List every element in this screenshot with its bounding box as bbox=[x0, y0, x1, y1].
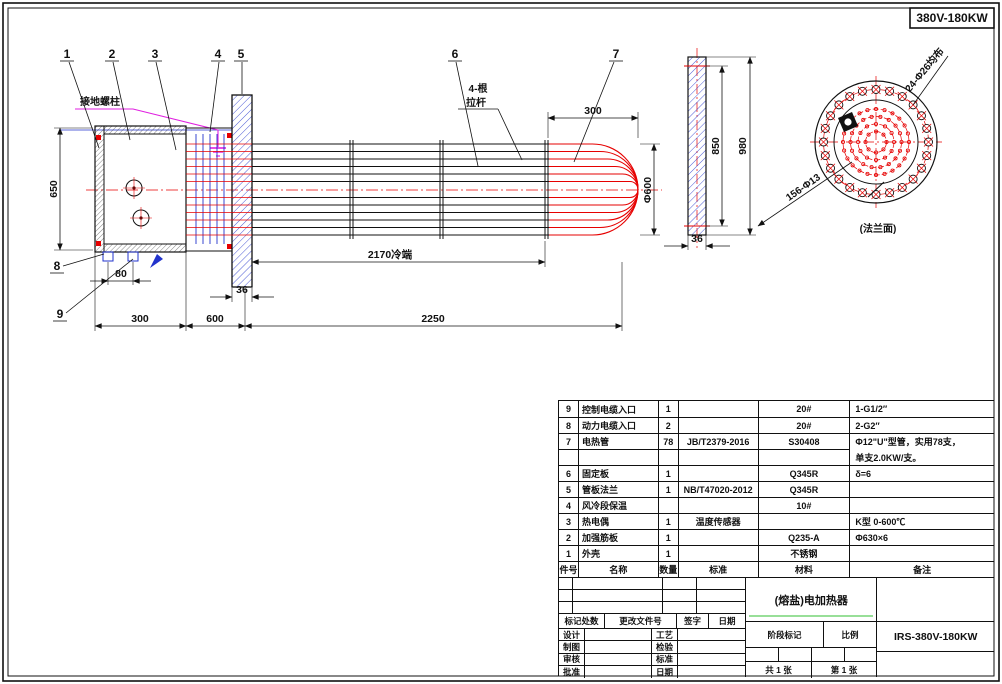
parts-row: 单支2.0KW/支。 bbox=[559, 449, 994, 465]
green-underline bbox=[749, 615, 873, 617]
tube-plate-flange bbox=[232, 95, 252, 287]
parts-cell bbox=[850, 481, 994, 497]
parts-table: 9控制电缆入口120#1-G1/2″8动力电缆入口220#2-G2″7电热管78… bbox=[559, 401, 994, 577]
parts-header-cell: 材料 bbox=[759, 561, 851, 577]
sign-label: 日期 bbox=[652, 666, 678, 678]
parts-cell: 1 bbox=[659, 481, 679, 497]
svg-text:80: 80 bbox=[115, 268, 127, 280]
parts-cell: 控制电缆入口 bbox=[579, 401, 659, 417]
parts-cell bbox=[679, 417, 759, 433]
svg-text:850: 850 bbox=[710, 137, 722, 155]
parts-cell: 2-G2″ bbox=[850, 417, 994, 433]
parts-cell: 2 bbox=[659, 417, 679, 433]
revision-block: 标记处数 更改文件号 签字 日期 设计 工艺 制图 检验 审核 标准 bbox=[559, 577, 745, 677]
parts-cell: 不锈钢 bbox=[759, 545, 851, 561]
drawing-number: IRS-380V-180KW bbox=[877, 622, 994, 652]
parts-cell bbox=[659, 449, 679, 465]
parts-cell bbox=[659, 497, 679, 513]
parts-cell: 7 bbox=[559, 433, 579, 449]
parts-cell: 加强筋板 bbox=[579, 529, 659, 545]
parts-cell: 风冷段保温 bbox=[579, 497, 659, 513]
parts-cell: 管板法兰 bbox=[579, 481, 659, 497]
ground-label: 接地螺柱 bbox=[80, 95, 120, 108]
parts-cell: 单支2.0KW/支。 bbox=[850, 449, 994, 465]
parts-cell: Q345R bbox=[759, 465, 851, 481]
corner-label: 380V-180KW bbox=[916, 11, 988, 25]
sign-label: 标准 bbox=[652, 654, 678, 666]
parts-row: 6固定板1Q345Rδ=6 bbox=[559, 465, 994, 481]
svg-text:650: 650 bbox=[48, 180, 60, 198]
sign-label: 审核 bbox=[559, 654, 585, 666]
parts-cell: 1 bbox=[659, 529, 679, 545]
parts-cell bbox=[679, 497, 759, 513]
parts-cell: 4 bbox=[559, 497, 579, 513]
sign-label: 制图 bbox=[559, 641, 585, 653]
drawing-number-block: IRS-380V-180KW bbox=[876, 577, 994, 677]
parts-cell: 78 bbox=[659, 433, 679, 449]
parts-cell bbox=[759, 449, 851, 465]
svg-text:6: 6 bbox=[452, 47, 459, 61]
parts-cell: 固定板 bbox=[579, 465, 659, 481]
parts-row: 5管板法兰1NB/T47020-2012Q345R bbox=[559, 481, 994, 497]
parts-cell: 动力电缆入口 bbox=[579, 417, 659, 433]
svg-text:拉杆: 拉杆 bbox=[466, 96, 486, 109]
svg-text:4-根: 4-根 bbox=[469, 82, 488, 95]
parts-cell bbox=[759, 513, 851, 529]
parts-cell: Φ630×6 bbox=[850, 529, 994, 545]
parts-header-cell: 数量 bbox=[659, 561, 679, 577]
parts-header-cell: 件号 bbox=[559, 561, 579, 577]
sign-label: 设计 bbox=[559, 629, 585, 641]
parts-cell bbox=[679, 545, 759, 561]
drawing-sheet: 380V-180KW bbox=[0, 0, 1002, 684]
svg-text:4: 4 bbox=[215, 47, 222, 61]
sign-label: 批准 bbox=[559, 666, 585, 678]
parts-cell bbox=[850, 497, 994, 513]
parts-cell: 温度传感器 bbox=[679, 513, 759, 529]
parts-cell: 外壳 bbox=[579, 545, 659, 561]
parts-cell bbox=[679, 465, 759, 481]
title-block: 9控制电缆入口120#1-G1/2″8动力电缆入口220#2-G2″7电热管78… bbox=[558, 400, 994, 676]
svg-text:5: 5 bbox=[238, 47, 245, 61]
svg-text:8: 8 bbox=[54, 259, 61, 273]
parts-cell: 电热管 bbox=[579, 433, 659, 449]
parts-header-cell: 标准 bbox=[679, 561, 759, 577]
sign-label: 工艺 bbox=[652, 629, 678, 641]
parts-row: 2加强筋板1Q235-AΦ630×6 bbox=[559, 529, 994, 545]
parts-cell bbox=[559, 449, 579, 465]
parts-cell: Q235-A bbox=[759, 529, 851, 545]
svg-text:2: 2 bbox=[109, 47, 116, 61]
corner-label-box: 380V-180KW bbox=[910, 8, 994, 28]
rev-hdr: 日期 bbox=[709, 614, 745, 629]
svg-text:300: 300 bbox=[131, 313, 149, 325]
parts-cell bbox=[679, 449, 759, 465]
scale-label: 比例 bbox=[824, 622, 876, 648]
svg-text:9: 9 bbox=[57, 307, 64, 321]
rev-hdr: 更改文件号 bbox=[605, 614, 677, 629]
name-block: (熔盐)电加热器 阶段标记 比例 共 1 张 第 1 张 bbox=[745, 577, 876, 677]
parts-cell: 9 bbox=[559, 401, 579, 417]
parts-cell: JB/T2379-2016 bbox=[679, 433, 759, 449]
parts-cell: 2 bbox=[559, 529, 579, 545]
parts-cell: 8 bbox=[559, 417, 579, 433]
rev-hdr: 签字 bbox=[677, 614, 709, 629]
parts-cell: 1 bbox=[659, 465, 679, 481]
parts-row: 7电热管78JB/T2379-2016S30408Φ12"U"型管，实用78支， bbox=[559, 433, 994, 449]
parts-cell: 6 bbox=[559, 465, 579, 481]
parts-cell: 1-G1/2″ bbox=[850, 401, 994, 417]
parts-cell: 20# bbox=[759, 401, 851, 417]
sign-label: 检验 bbox=[652, 641, 678, 653]
parts-cell: 热电偶 bbox=[579, 513, 659, 529]
rev-hdr: 标记处数 bbox=[559, 614, 605, 629]
parts-row: 4风冷段保温10# bbox=[559, 497, 994, 513]
svg-text:36: 36 bbox=[691, 233, 703, 245]
parts-row: 3热电偶1温度传感器K型 0-600℃ bbox=[559, 513, 994, 529]
parts-row: 1外壳1不锈钢 bbox=[559, 545, 994, 561]
svg-text:980: 980 bbox=[737, 137, 749, 155]
flange-face-label: (法兰面) bbox=[860, 222, 897, 235]
parts-cell: Φ12"U"型管，实用78支， bbox=[850, 433, 994, 449]
parts-cell: 10# bbox=[759, 497, 851, 513]
parts-cell: 3 bbox=[559, 513, 579, 529]
svg-text:2170冷端: 2170冷端 bbox=[368, 248, 413, 261]
parts-cell bbox=[579, 449, 659, 465]
parts-cell: Q345R bbox=[759, 481, 851, 497]
parts-cell: 1 bbox=[659, 513, 679, 529]
parts-cell: 5 bbox=[559, 481, 579, 497]
parts-row: 8动力电缆入口220#2-G2″ bbox=[559, 417, 994, 433]
parts-header-cell: 名称 bbox=[579, 561, 659, 577]
parts-cell: δ=6 bbox=[850, 465, 994, 481]
parts-cell: 1 bbox=[659, 401, 679, 417]
parts-cell bbox=[679, 401, 759, 417]
parts-row: 9控制电缆入口120#1-G1/2″ bbox=[559, 401, 994, 417]
svg-text:2250: 2250 bbox=[421, 313, 445, 325]
parts-cell bbox=[679, 529, 759, 545]
parts-cell: 1 bbox=[559, 545, 579, 561]
svg-text:Φ600: Φ600 bbox=[642, 177, 654, 203]
parts-cell: 1 bbox=[659, 545, 679, 561]
parts-cell: 20# bbox=[759, 417, 851, 433]
svg-text:3: 3 bbox=[152, 47, 159, 61]
parts-cell bbox=[850, 545, 994, 561]
sheet-total: 共 1 张 bbox=[746, 662, 812, 678]
sheet-number: 第 1 张 bbox=[812, 662, 876, 678]
parts-header-cell: 备注 bbox=[850, 561, 994, 577]
parts-cell: NB/T47020-2012 bbox=[679, 481, 759, 497]
parts-header-row: 件号名称数量标准材料备注 bbox=[559, 561, 994, 577]
svg-text:300: 300 bbox=[584, 105, 602, 117]
svg-text:7: 7 bbox=[613, 47, 620, 61]
svg-text:36: 36 bbox=[236, 284, 248, 296]
svg-text:600: 600 bbox=[206, 313, 224, 325]
parts-cell: S30408 bbox=[759, 433, 851, 449]
svg-text:1: 1 bbox=[64, 47, 71, 61]
stage-label: 阶段标记 bbox=[746, 622, 824, 648]
parts-cell: K型 0-600℃ bbox=[850, 513, 994, 529]
